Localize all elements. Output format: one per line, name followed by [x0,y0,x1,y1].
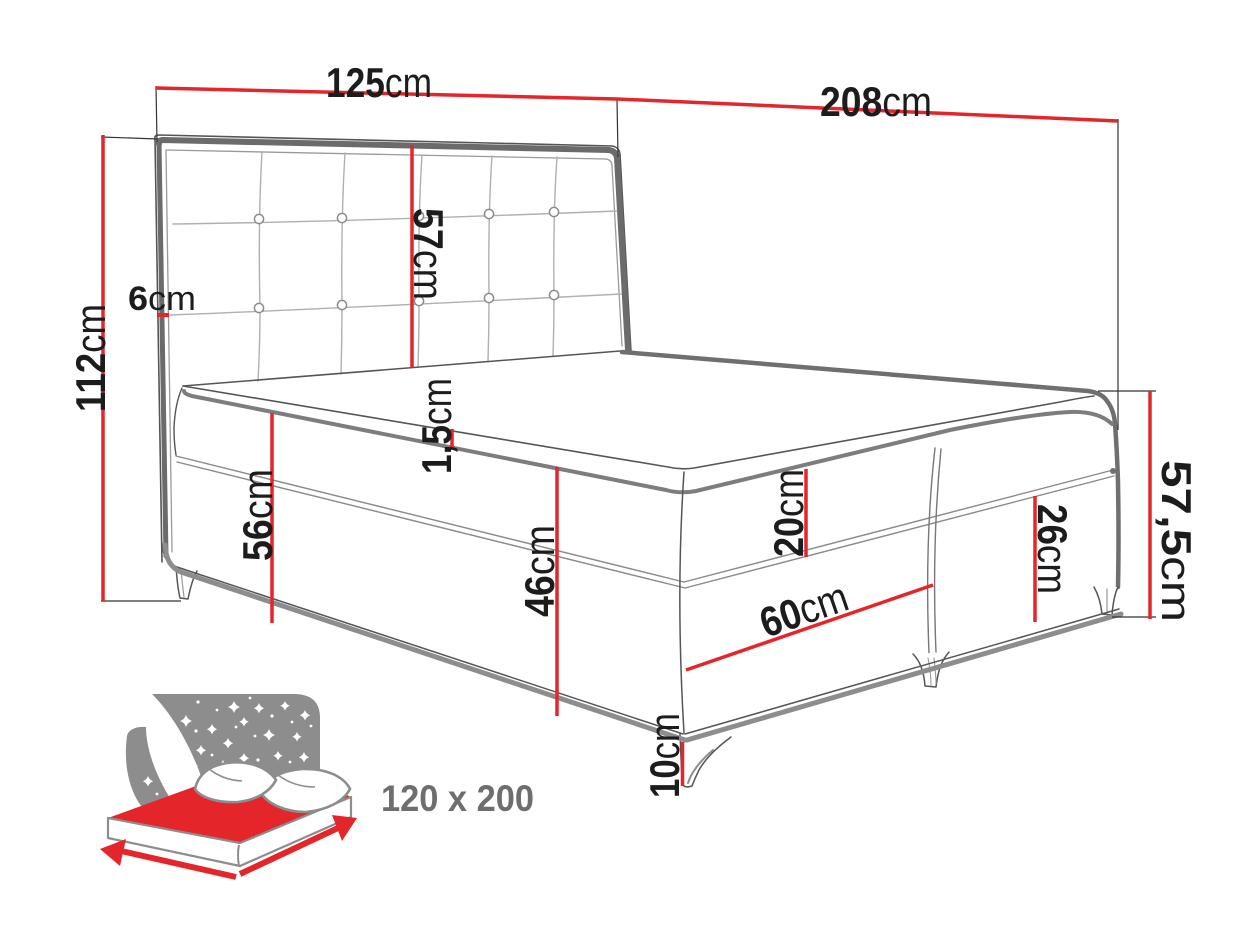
svg-text:20cm: 20cm [765,469,812,557]
svg-text:112cm: 112cm [67,304,114,412]
svg-text:57,5cm: 57,5cm [1153,460,1200,622]
svg-text:1,5cm: 1,5cm [413,378,460,474]
svg-text:60cm: 60cm [754,573,854,647]
svg-text:56cm: 56cm [234,469,281,561]
svg-text:125cm: 125cm [326,59,432,106]
svg-text:208cm: 208cm [820,78,932,125]
svg-text:120 x 200: 120 x 200 [381,778,534,819]
svg-text:10cm: 10cm [641,713,688,798]
svg-text:46cm: 46cm [516,525,563,617]
svg-text:6cm: 6cm [128,280,196,318]
svg-text:57cm: 57cm [405,208,452,300]
svg-text:26cm: 26cm [1029,504,1076,594]
